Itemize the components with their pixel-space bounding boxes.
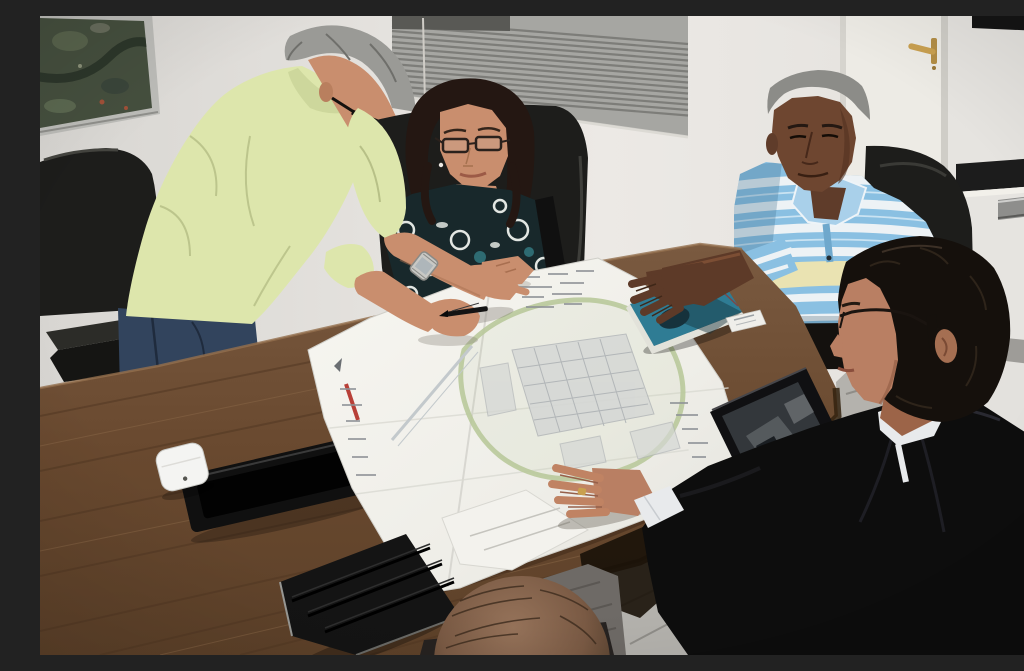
vignette xyxy=(40,16,1024,655)
meeting-photo xyxy=(40,16,1024,655)
